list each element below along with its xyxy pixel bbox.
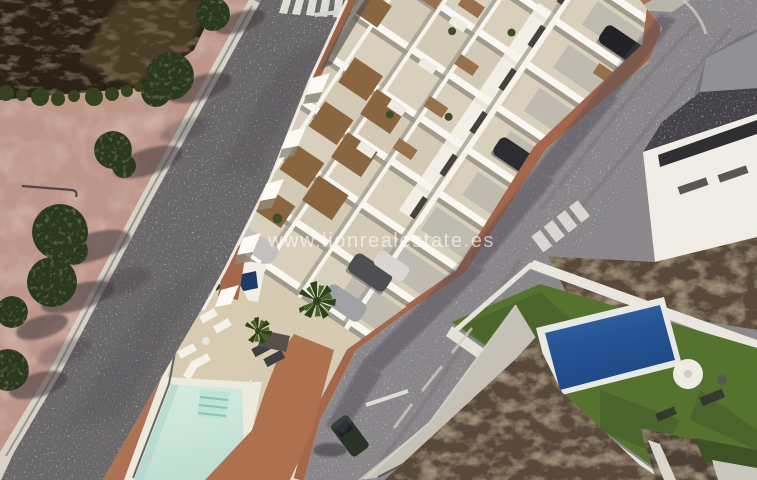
svg-text:www.lionrealestate.es: www.lionrealestate.es [267, 230, 495, 252]
